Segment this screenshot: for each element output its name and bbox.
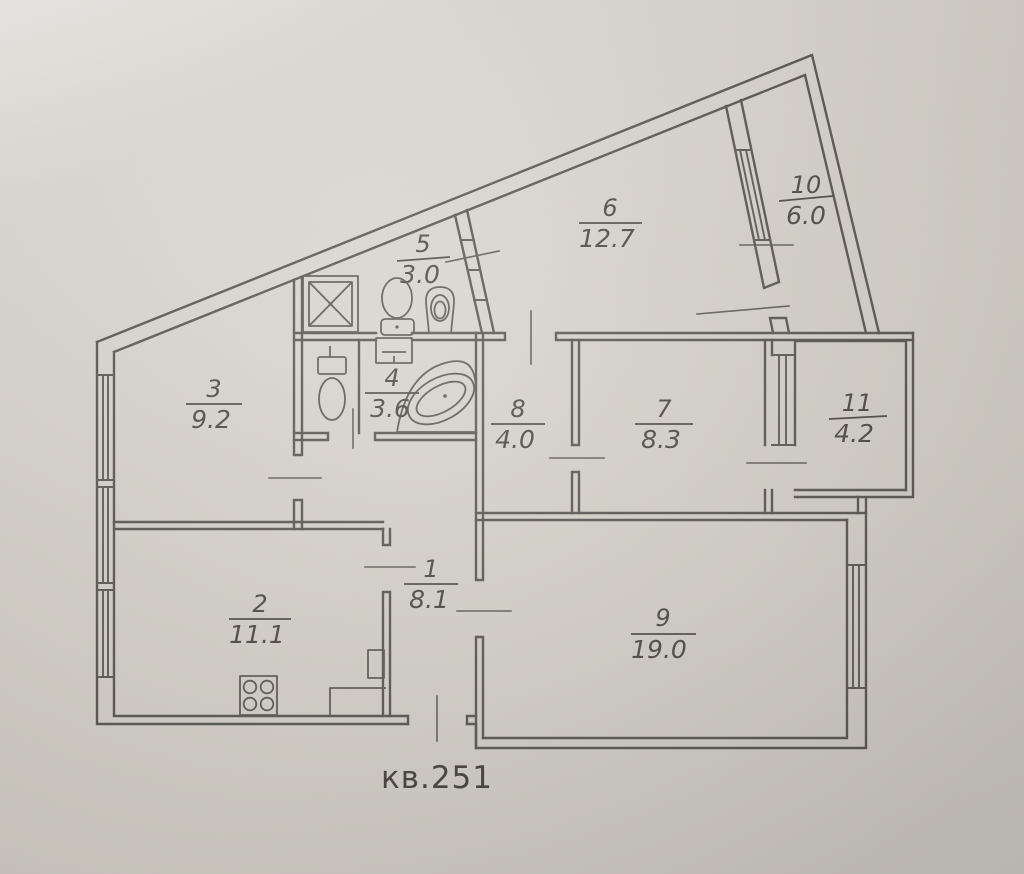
room-1-number: 1 [423, 555, 438, 583]
room-10-label: 10 6.0 [779, 171, 833, 230]
room-10-number: 10 [791, 171, 822, 199]
room-7-label: 7 8.3 [635, 395, 693, 454]
room-2-area: 11.1 [229, 620, 285, 649]
room-9-number: 9 [655, 604, 670, 632]
room-3-label: 3 9.2 [186, 375, 242, 434]
room-4-label: 4 3.6 [365, 364, 419, 423]
utility-box [368, 650, 384, 678]
shower-tray-icon [303, 276, 358, 332]
window-room2-left-upper [97, 487, 114, 583]
room-8-area: 4.0 [495, 425, 535, 454]
window-room2-left-lower [97, 590, 114, 677]
scanned-floor-plan-photo: 1 8.1 2 11.1 3 9.2 4 3.6 5 3.0 6 12.7 7 … [0, 0, 1024, 874]
room-11-number: 11 [842, 389, 873, 417]
room-5-label: 5 3.0 [397, 230, 450, 289]
door-marks [269, 245, 806, 741]
room-9-label: 9 19.0 [631, 604, 696, 664]
room-4-number: 4 [384, 364, 399, 392]
room-5-area: 3.0 [400, 260, 440, 289]
window-room9-right [847, 565, 866, 688]
room-3-number: 3 [206, 375, 221, 403]
room-6-area: 12.7 [579, 224, 635, 253]
room-7-number: 7 [656, 395, 672, 423]
room-11-area: 4.2 [834, 419, 874, 448]
kitchen-step [330, 688, 386, 716]
pedestal-sink-icon [426, 287, 454, 333]
room-6-label: 6 12.7 [579, 194, 642, 253]
room-3-area: 9.2 [191, 405, 231, 434]
room-2-label: 2 11.1 [229, 590, 291, 649]
room-8-label: 8 4.0 [491, 395, 545, 454]
apartment-title: кв.251 [381, 760, 493, 796]
stove-icon [240, 676, 277, 715]
room-1-label: 1 8.1 [404, 555, 458, 614]
room-11-label: 11 4.2 [829, 389, 887, 448]
room-9-area: 19.0 [631, 635, 687, 664]
washbasin-icon [376, 338, 412, 363]
room-5-number: 5 [415, 230, 430, 258]
room-1-area: 8.1 [409, 585, 449, 614]
window-room7-room11 [772, 355, 793, 445]
room-7-area: 8.3 [641, 425, 681, 454]
room-10-area: 6.0 [786, 201, 826, 230]
floor-plan: 1 8.1 2 11.1 3 9.2 4 3.6 5 3.0 6 12.7 7 … [0, 0, 1024, 874]
room-8-number: 8 [510, 395, 525, 423]
window-room10-slant [735, 150, 770, 240]
toilet-icon-wc [318, 346, 346, 420]
room-6-number: 6 [602, 194, 617, 222]
room-4-area: 3.6 [370, 394, 410, 423]
window-room3-left [97, 375, 114, 480]
room-2-number: 2 [252, 590, 267, 618]
